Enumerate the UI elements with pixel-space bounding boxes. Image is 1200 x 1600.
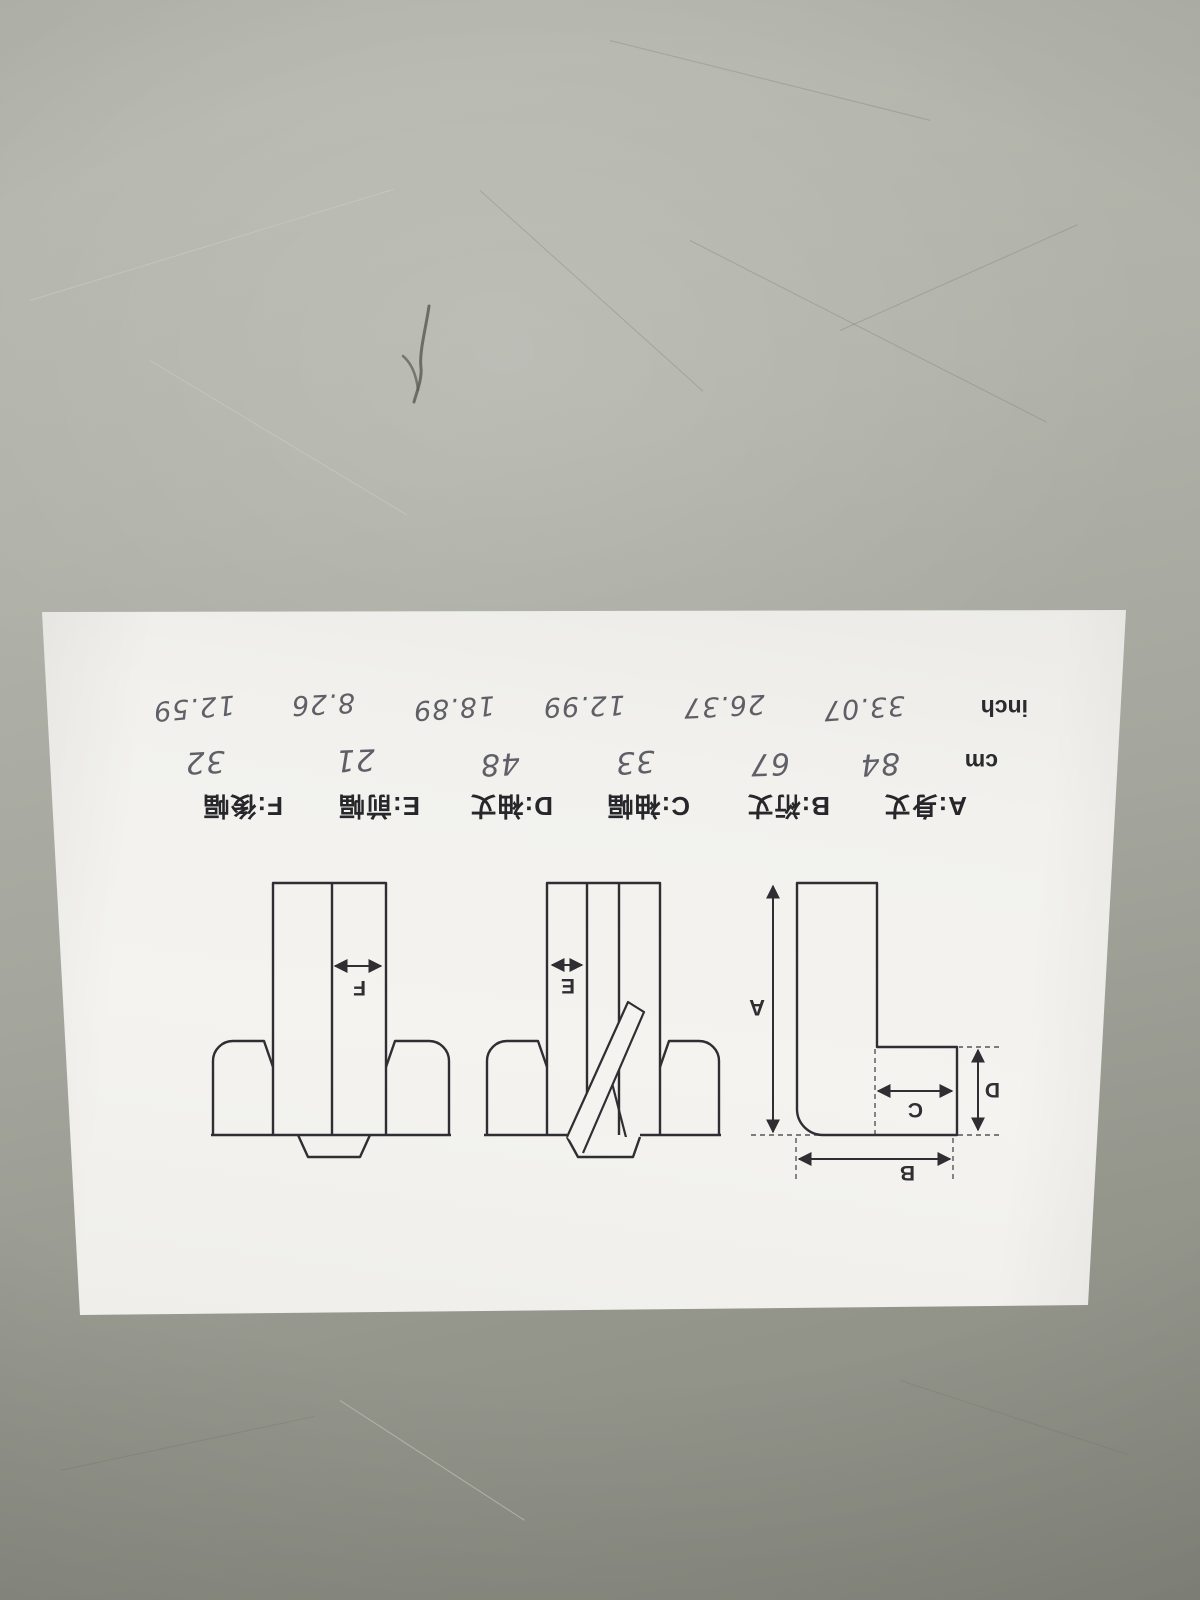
arrow-label-F: F <box>353 976 366 999</box>
diagram-kimono-back-view: F <box>205 863 455 1183</box>
cm-value-e: 21 <box>334 741 375 777</box>
kimono-side-outline <box>797 883 957 1135</box>
scratch-line <box>60 1416 315 1471</box>
diagram-kimono-side-view: A B C D <box>746 863 1003 1183</box>
inch-value-a: 33.07 <box>822 689 906 726</box>
scratch-line <box>690 240 1047 422</box>
measure-label-c: C:袖幅 <box>607 789 690 826</box>
scratch-line <box>610 40 930 121</box>
sheet-content: A B C D E <box>70 603 1090 1293</box>
desk-scratch-mark <box>395 300 447 412</box>
diagram-kimono-front-view: E <box>470 863 725 1183</box>
arrow-label-C: C <box>908 1098 923 1121</box>
collar-band <box>567 1002 644 1153</box>
inch-value-b: 26.37 <box>682 688 766 723</box>
desk-photo: A B C D E <box>0 0 1200 1600</box>
front-sleeve-left <box>660 1041 719 1135</box>
scratch-line <box>480 190 704 391</box>
back-sleeve-left <box>386 1041 449 1135</box>
scratch-line <box>340 1400 525 1521</box>
cm-value-a: 84 <box>859 745 901 782</box>
cm-value-f: 32 <box>184 743 226 780</box>
inch-value-f: 12.59 <box>152 688 237 726</box>
scratch-line <box>900 1380 1129 1455</box>
arrow-label-D: D <box>985 1078 1000 1101</box>
measure-label-f: F:後幅 <box>202 789 283 826</box>
cm-value-c: 33 <box>614 743 657 781</box>
back-sleeve-right <box>213 1041 273 1135</box>
arrow-label-A: A <box>749 995 765 1020</box>
paper-sheet: A B C D E <box>40 583 1132 1319</box>
measure-label-b: B:裄丈 <box>747 789 830 826</box>
scratch-line <box>30 189 394 301</box>
cm-value-b: 67 <box>749 745 790 781</box>
scratch-line <box>150 360 408 515</box>
back-body-outline <box>273 883 386 1135</box>
scratch-line <box>840 224 1078 331</box>
front-sleeve-right <box>487 1041 547 1135</box>
arrow-label-B: B <box>900 1161 915 1183</box>
measure-label-a: A:身丈 <box>884 789 967 826</box>
measure-label-e: E:前幅 <box>338 789 420 826</box>
back-collar-trapezoid <box>298 1135 370 1157</box>
inch-value-d: 18.89 <box>412 689 496 726</box>
measure-label-d: D:袖丈 <box>470 789 553 826</box>
inch-value-c: 12.99 <box>542 689 625 723</box>
inch-unit-label: inch <box>981 694 1028 721</box>
cm-value-d: 48 <box>479 745 521 782</box>
arrow-label-E: E <box>561 974 575 997</box>
cm-unit-label: cm <box>965 748 998 775</box>
inch-value-e: 8.26 <box>290 686 356 720</box>
